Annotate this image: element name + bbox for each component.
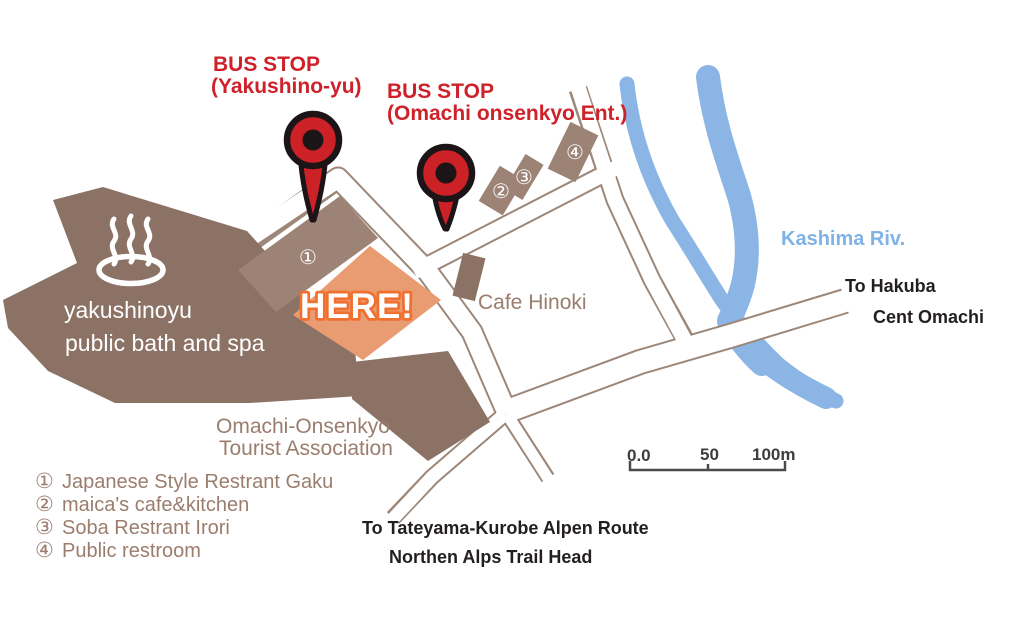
bus-stop-1-subtitle: (Yakushino-yu) xyxy=(211,75,362,98)
map-page: BUS STOP (Yakushino-yu) BUS STOP (Omachi… xyxy=(0,0,1024,623)
spa-subtitle: public bath and spa xyxy=(65,330,265,356)
map-marker-1: ① xyxy=(299,247,317,269)
direction-hakuba: To Hakuba xyxy=(845,276,937,296)
scale-bar: 0.0 50 100m xyxy=(627,445,795,470)
direction-cent-omachi: Cent Omachi xyxy=(873,307,984,327)
scale-end: 100m xyxy=(752,445,795,464)
map-marker-4: ④ xyxy=(566,142,584,164)
legend-label-3: Soba Restrant Irori xyxy=(62,517,230,539)
bus-stop-1-title: BUS STOP xyxy=(213,53,320,76)
here-label: HERE! xyxy=(300,287,414,326)
tourist-association-line1: Omachi-Onsenkyo xyxy=(216,415,390,438)
legend-num-3: ③ xyxy=(35,516,54,539)
scale-mid: 50 xyxy=(700,445,719,464)
legend-num-2: ② xyxy=(35,493,54,516)
river-label: Kashima Riv. xyxy=(781,228,905,250)
bus-stop-2-subtitle: (Omachi onsenkyo Ent.) xyxy=(387,102,627,125)
legend-label-1: Japanese Style Restrant Gaku xyxy=(62,471,333,493)
bus-stop-2-title: BUS STOP xyxy=(387,80,494,103)
legend-item: ③ Soba Restrant Irori xyxy=(35,516,230,539)
legend-item: ① Japanese Style Restrant Gaku xyxy=(35,470,333,493)
spa-name: yakushinoyu xyxy=(64,297,192,323)
route-label-line2: Northen Alps Trail Head xyxy=(389,547,592,567)
bus-stop-pin-omachi-onsenkyo xyxy=(420,147,472,229)
legend-num-4: ④ xyxy=(35,539,54,562)
route-label-line1: To Tateyama-Kurobe Alpen Route xyxy=(362,518,649,538)
legend-label-4: Public restroom xyxy=(62,540,201,562)
legend-num-1: ① xyxy=(35,470,54,493)
legend: ① Japanese Style Restrant Gaku ② maica's… xyxy=(35,470,333,562)
legend-label-2: maica's cafe&kitchen xyxy=(62,494,249,516)
map-marker-2: ② xyxy=(492,181,510,203)
map-canvas: BUS STOP (Yakushino-yu) BUS STOP (Omachi… xyxy=(0,0,1024,623)
legend-item: ④ Public restroom xyxy=(35,539,201,562)
map-marker-3: ③ xyxy=(515,167,533,189)
cafe-hinoki-label: Cafe Hinoki xyxy=(478,291,587,314)
legend-item: ② maica's cafe&kitchen xyxy=(35,493,249,516)
tourist-association-line2: Tourist Association xyxy=(219,437,393,460)
